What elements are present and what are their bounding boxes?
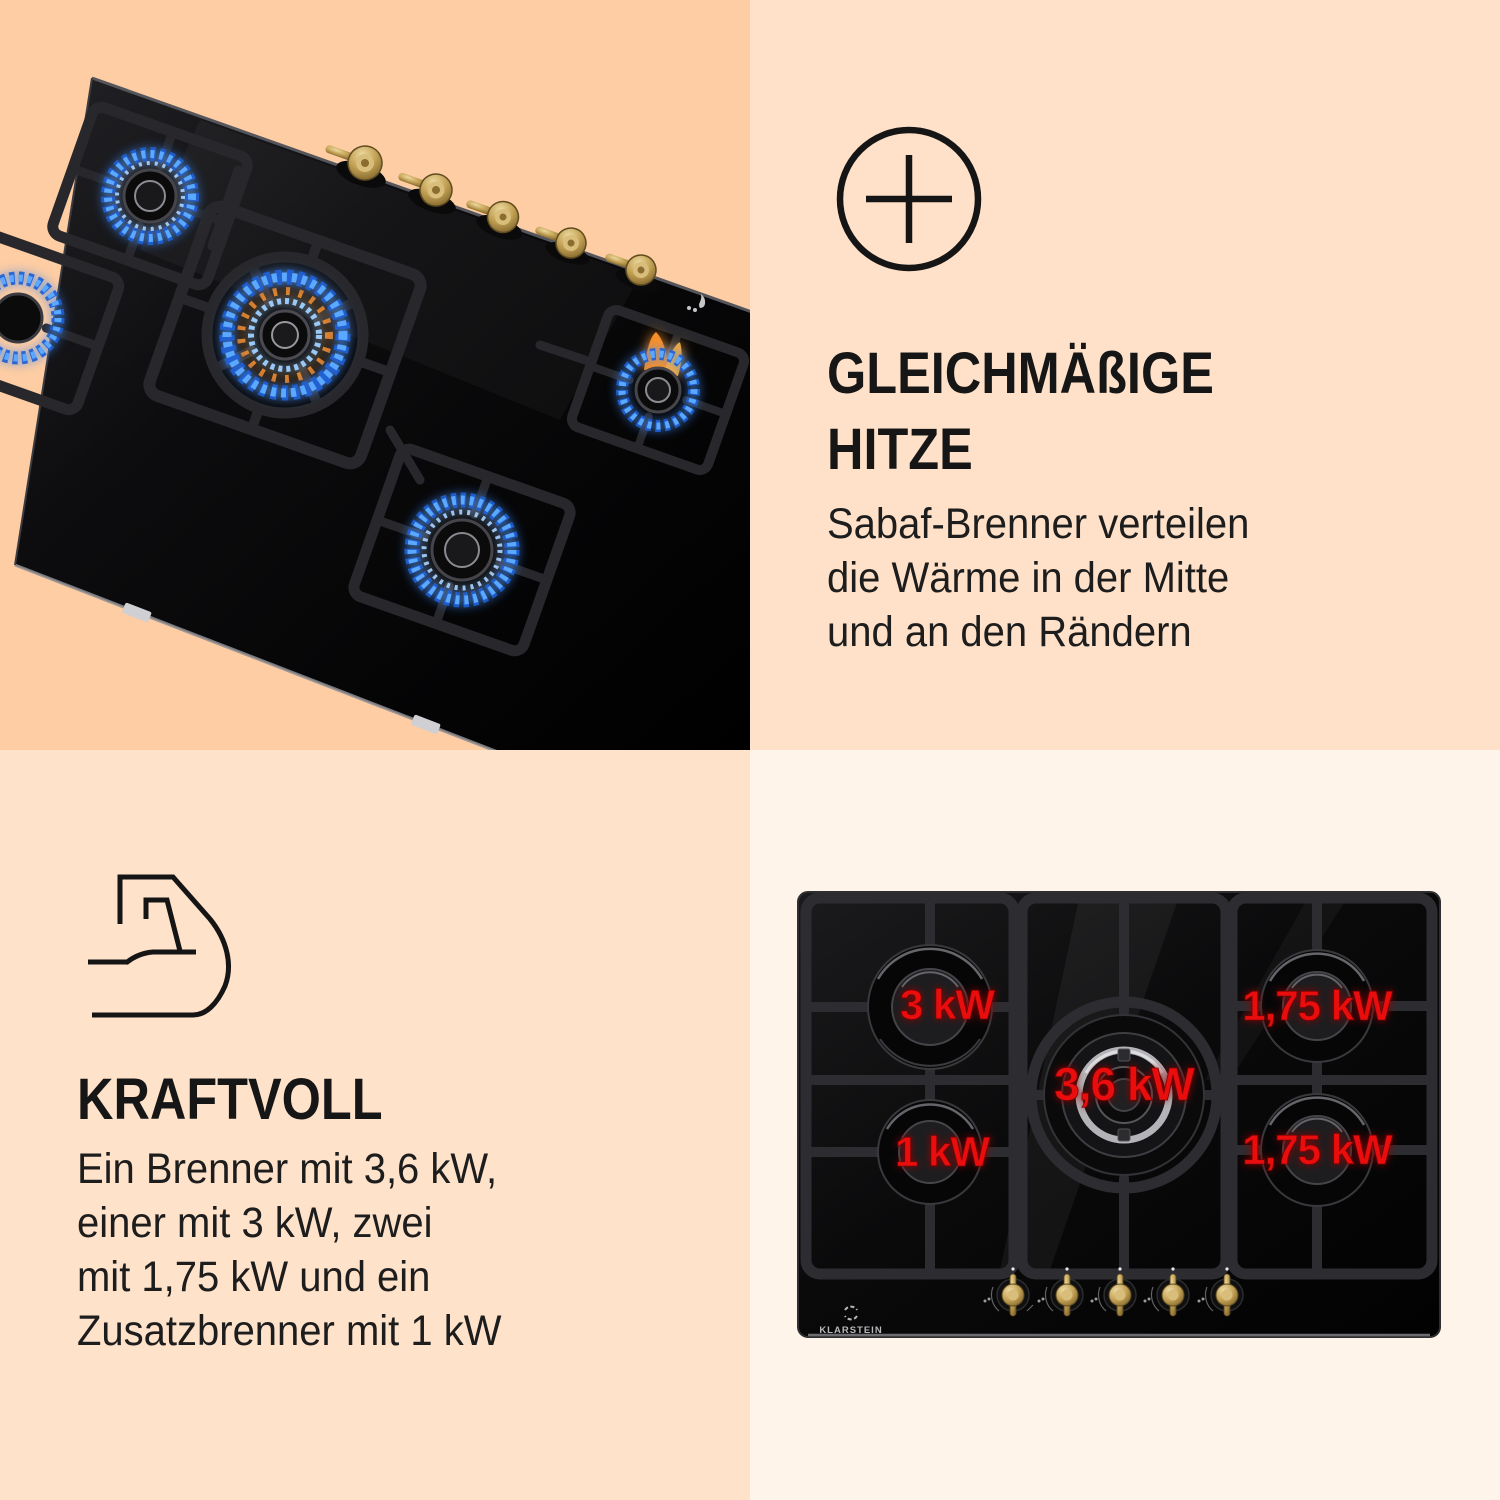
feature-block-power: KRAFTVOLL Ein Brenner mit 3,6 kW, einer … — [0, 750, 750, 1500]
body-line: die Wärme in der Mitte — [827, 551, 1249, 605]
body-line: Zusatzbrenner mit 1 kW — [77, 1304, 501, 1358]
feature-block-heat: GLEICHMÄßIGE HITZE Sabaf-Brenner verteil… — [750, 0, 1500, 750]
product-feature-collage: GLEICHMÄßIGE HITZE Sabaf-Brenner verteil… — [0, 0, 1500, 1500]
plus-circle-icon — [834, 124, 984, 274]
body-line: Ein Brenner mit 3,6 kW, — [77, 1142, 501, 1196]
body-line: und an den Rändern — [827, 605, 1249, 659]
title-line: KRAFTVOLL — [77, 1062, 383, 1138]
klarstein-logo-text: KLARSTEIN — [819, 1325, 882, 1336]
power-label-left-bottom: 1 kW — [895, 1128, 990, 1175]
title-line: GLEICHMÄßIGE — [827, 336, 1214, 412]
body-line: Sabaf-Brenner verteilen — [827, 497, 1249, 551]
feature-heat-body: Sabaf-Brenner verteilen die Wärme in der… — [827, 497, 1249, 659]
power-label-center: 3,6 kW — [1054, 1058, 1195, 1110]
photo-gas-hob-top-view: 3 kW 1,75 kW 3,6 kW 1 kW 1,75 kW — [750, 750, 1500, 1500]
title-line: HITZE — [827, 412, 1214, 488]
power-label-right-top: 1,75 kW — [1242, 982, 1393, 1029]
feature-power-body: Ein Brenner mit 3,6 kW, einer mit 3 kW, … — [77, 1142, 501, 1358]
body-line: einer mit 3 kW, zwei — [77, 1196, 501, 1250]
hob-top-view-illustration: 3 kW 1,75 kW 3,6 kW 1 kW 1,75 kW — [750, 750, 1500, 1500]
feature-heat-title: GLEICHMÄßIGE HITZE — [827, 336, 1214, 488]
gas-hob-flames-illustration — [0, 0, 750, 750]
muscle-arm-icon — [70, 862, 245, 1032]
power-label-left-top: 3 kW — [900, 981, 995, 1028]
body-line: mit 1,75 kW und ein — [77, 1250, 501, 1304]
feature-power-title: KRAFTVOLL — [77, 1062, 383, 1138]
power-label-right-bottom: 1,75 kW — [1242, 1126, 1393, 1173]
photo-gas-hob-angled — [0, 0, 750, 750]
